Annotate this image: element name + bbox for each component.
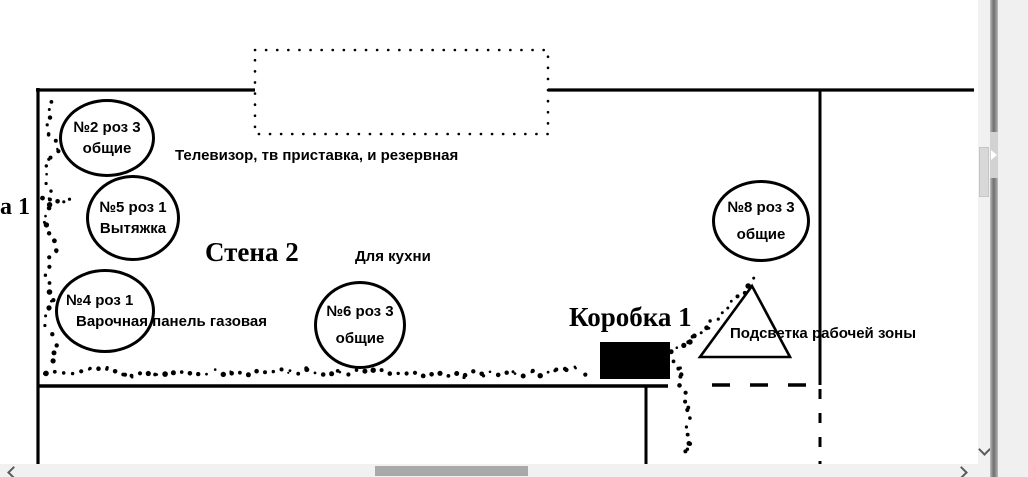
- expand-right-arrow-icon: [991, 150, 997, 160]
- junction-box-label: Коробка 1: [569, 302, 692, 332]
- outlet-circle-2: №2 роз 3 общие: [59, 99, 155, 177]
- outlet-5-line2: Вытяжка: [100, 218, 166, 239]
- tv-note: Телевизор, тв приставка, и резервная: [175, 146, 458, 165]
- left-wall-label: а 1: [0, 194, 30, 221]
- outlet-circle-5: №5 роз 1 Вытяжка: [86, 175, 180, 261]
- outlet-5-line1: №5 роз 1: [99, 197, 166, 218]
- kitchen-note: Для кухни: [355, 247, 431, 266]
- tv-zone-dotted-rect: [255, 50, 548, 134]
- junction-box: [600, 342, 670, 379]
- panel-expand-handle[interactable]: [990, 132, 998, 178]
- outlet-8-line2: общие: [737, 221, 786, 248]
- outlet-2-line1: №2 роз 3: [73, 117, 140, 138]
- wall-2-title: Стена 2: [205, 237, 299, 267]
- worklight-label: Подсветка рабочей зоны: [730, 324, 916, 343]
- vertical-scrollbar-thumb[interactable]: [979, 147, 989, 197]
- diagram-canvas: а 1 Телевизор, тв приставка, и резервная…: [0, 0, 978, 464]
- outlet-circle-8: №8 роз 3 общие: [712, 180, 810, 262]
- panel-splitter[interactable]: [990, 0, 998, 477]
- viewer-window: а 1 Телевизор, тв приставка, и резервная…: [0, 0, 1028, 477]
- outlet-8-line1: №8 роз 3: [727, 194, 794, 221]
- vertical-scrollbar-track[interactable]: [978, 0, 990, 477]
- horizontal-scrollbar-thumb[interactable]: [375, 466, 528, 476]
- outlet-4-line1: №4 роз 1: [66, 290, 133, 311]
- outlet-4-line2: Варочная панель газовая: [76, 311, 267, 332]
- right-gutter: [998, 0, 1028, 477]
- worklight-triangle: [700, 286, 790, 357]
- outlet-circle-6: №6 роз 3 общие: [314, 281, 406, 369]
- outlet-6-line2: общие: [336, 325, 385, 352]
- outlet-6-line1: №6 роз 3: [326, 298, 393, 325]
- outlet-2-line2: общие: [83, 138, 132, 159]
- outlet-circle-4: №4 роз 1 Варочная панель газовая: [55, 269, 155, 353]
